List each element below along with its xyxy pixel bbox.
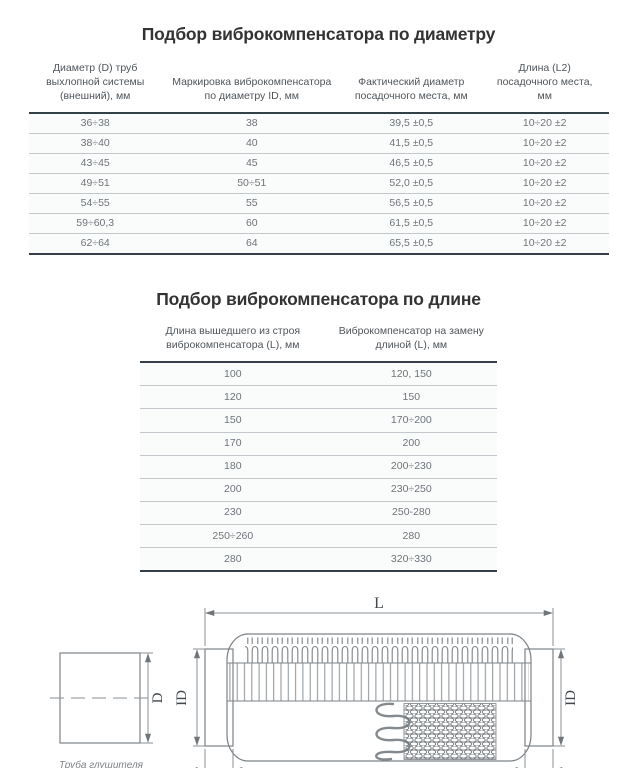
table-cell: 65,5 ±0,5: [342, 234, 481, 255]
table-cell: 62÷64: [29, 234, 162, 255]
dimension-id-right-label: ID: [563, 690, 579, 706]
technical-diagram: D Труба глушителя L ID: [0, 594, 637, 768]
table-cell: 10÷20 ±2: [481, 234, 609, 255]
column-header: Длина вышедшего из строя виброкомпенсато…: [140, 320, 326, 362]
column-header: Длина (L2) посадочного места, мм: [481, 57, 609, 113]
compensator-drawing: D Труба глушителя L ID: [0, 594, 637, 768]
diameter-section-title: Подбор виброкомпенсатора по диаметру: [0, 24, 637, 45]
table-row: 54÷555556,5 ±0,510÷20 ±2: [29, 194, 609, 214]
table-cell: 150: [140, 409, 326, 432]
table-cell: 250÷260: [140, 525, 326, 548]
table-cell: 320÷330: [326, 548, 497, 572]
table-cell: 49÷51: [29, 173, 162, 193]
right-sleeve: [525, 649, 553, 746]
table-cell: 120, 150: [326, 362, 497, 386]
dimension-d-label: D: [150, 693, 166, 704]
table-cell: 54÷55: [29, 194, 162, 214]
header-row: Длина вышедшего из строя виброкомпенсато…: [140, 320, 497, 362]
table-cell: 100: [140, 362, 326, 386]
length-section-title: Подбор виброкомпенсатора по длине: [0, 289, 637, 310]
table-cell: 52,0 ±0,5: [342, 173, 481, 193]
table-cell: 10÷20 ±2: [481, 113, 609, 134]
column-header: Диаметр (D) труб выхлопной системы (внеш…: [29, 57, 162, 113]
table-row: 280320÷330: [140, 548, 497, 572]
pipe-caption: Труба глушителя: [59, 759, 144, 768]
table-row: 49÷5150÷5152,0 ±0,510÷20 ±2: [29, 173, 609, 193]
table-cell: 56,5 ±0,5: [342, 194, 481, 214]
braid-hatch-band: [229, 664, 529, 701]
table-cell: 64: [162, 234, 342, 255]
table-cell: 200: [326, 432, 497, 455]
dimension-id-left-label: ID: [174, 690, 190, 706]
column-header: Маркировка виброкомпенсатора по диаметру…: [162, 57, 342, 113]
table-cell: 59÷60,3: [29, 214, 162, 234]
table-cell: 45: [162, 153, 342, 173]
table-cell: 230: [140, 501, 326, 524]
table-cell: 200: [140, 478, 326, 501]
table-cell: 60: [162, 214, 342, 234]
table-cell: 280: [140, 548, 326, 572]
table-cell: 10÷20 ±2: [481, 214, 609, 234]
table-row: 250÷260280: [140, 525, 497, 548]
table-cell: 10÷20 ±2: [481, 194, 609, 214]
table-row: 200230÷250: [140, 478, 497, 501]
table-cell: 41,5 ±0,5: [342, 133, 481, 153]
table-cell: 61,5 ±0,5: [342, 214, 481, 234]
catalog-page: Подбор виброкомпенсатора по диаметру Диа…: [0, 0, 637, 768]
table-row: 59÷60,36061,5 ±0,510÷20 ±2: [29, 214, 609, 234]
length-selection-table: Длина вышедшего из строя виброкомпенсато…: [140, 320, 497, 572]
table-row: 100120, 150: [140, 362, 497, 386]
table-cell: 200÷230: [326, 455, 497, 478]
table-cell: 46,5 ±0,5: [342, 153, 481, 173]
table-cell: 120: [140, 386, 326, 409]
table-cell: 43÷45: [29, 153, 162, 173]
table-cell: 170: [140, 432, 326, 455]
table-row: 180200÷230: [140, 455, 497, 478]
table-cell: 36÷38: [29, 113, 162, 134]
header-row: Диаметр (D) труб выхлопной системы (внеш…: [29, 57, 609, 113]
table-cell: 38÷40: [29, 133, 162, 153]
bellows-band: [245, 638, 513, 663]
table-cell: 38: [162, 113, 342, 134]
table-row: 170200: [140, 432, 497, 455]
table-cell: 10÷20 ±2: [481, 133, 609, 153]
column-header: Виброкомпенсатор на замену длиной (L), м…: [326, 320, 497, 362]
table-cell: 150: [326, 386, 497, 409]
table-cell: 230÷250: [326, 478, 497, 501]
left-sleeve: [205, 649, 233, 746]
table-row: 120150: [140, 386, 497, 409]
table-row: 36÷383839,5 ±0,510÷20 ±2: [29, 113, 609, 134]
table-row: 230250-280: [140, 501, 497, 524]
table-cell: 280: [326, 525, 497, 548]
table-cell: 50÷51: [162, 173, 342, 193]
table-cell: 180: [140, 455, 326, 478]
table-row: 38÷404041,5 ±0,510÷20 ±2: [29, 133, 609, 153]
diameter-selection-table: Диаметр (D) труб выхлопной системы (внеш…: [29, 57, 609, 255]
table-cell: 39,5 ±0,5: [342, 113, 481, 134]
table-row: 43÷454546,5 ±0,510÷20 ±2: [29, 153, 609, 173]
table-cell: 170÷200: [326, 409, 497, 432]
table-cell: 55: [162, 194, 342, 214]
table-row: 150170÷200: [140, 409, 497, 432]
column-header: Фактический диаметр посадочного места, м…: [342, 57, 481, 113]
table-row: 62÷646465,5 ±0,510÷20 ±2: [29, 234, 609, 255]
table-cell: 40: [162, 133, 342, 153]
table-cell: 10÷20 ±2: [481, 153, 609, 173]
table-cell: 10÷20 ±2: [481, 173, 609, 193]
dimension-l-label: L: [374, 595, 384, 612]
mesh-section: [404, 704, 496, 760]
table-cell: 250-280: [326, 501, 497, 524]
